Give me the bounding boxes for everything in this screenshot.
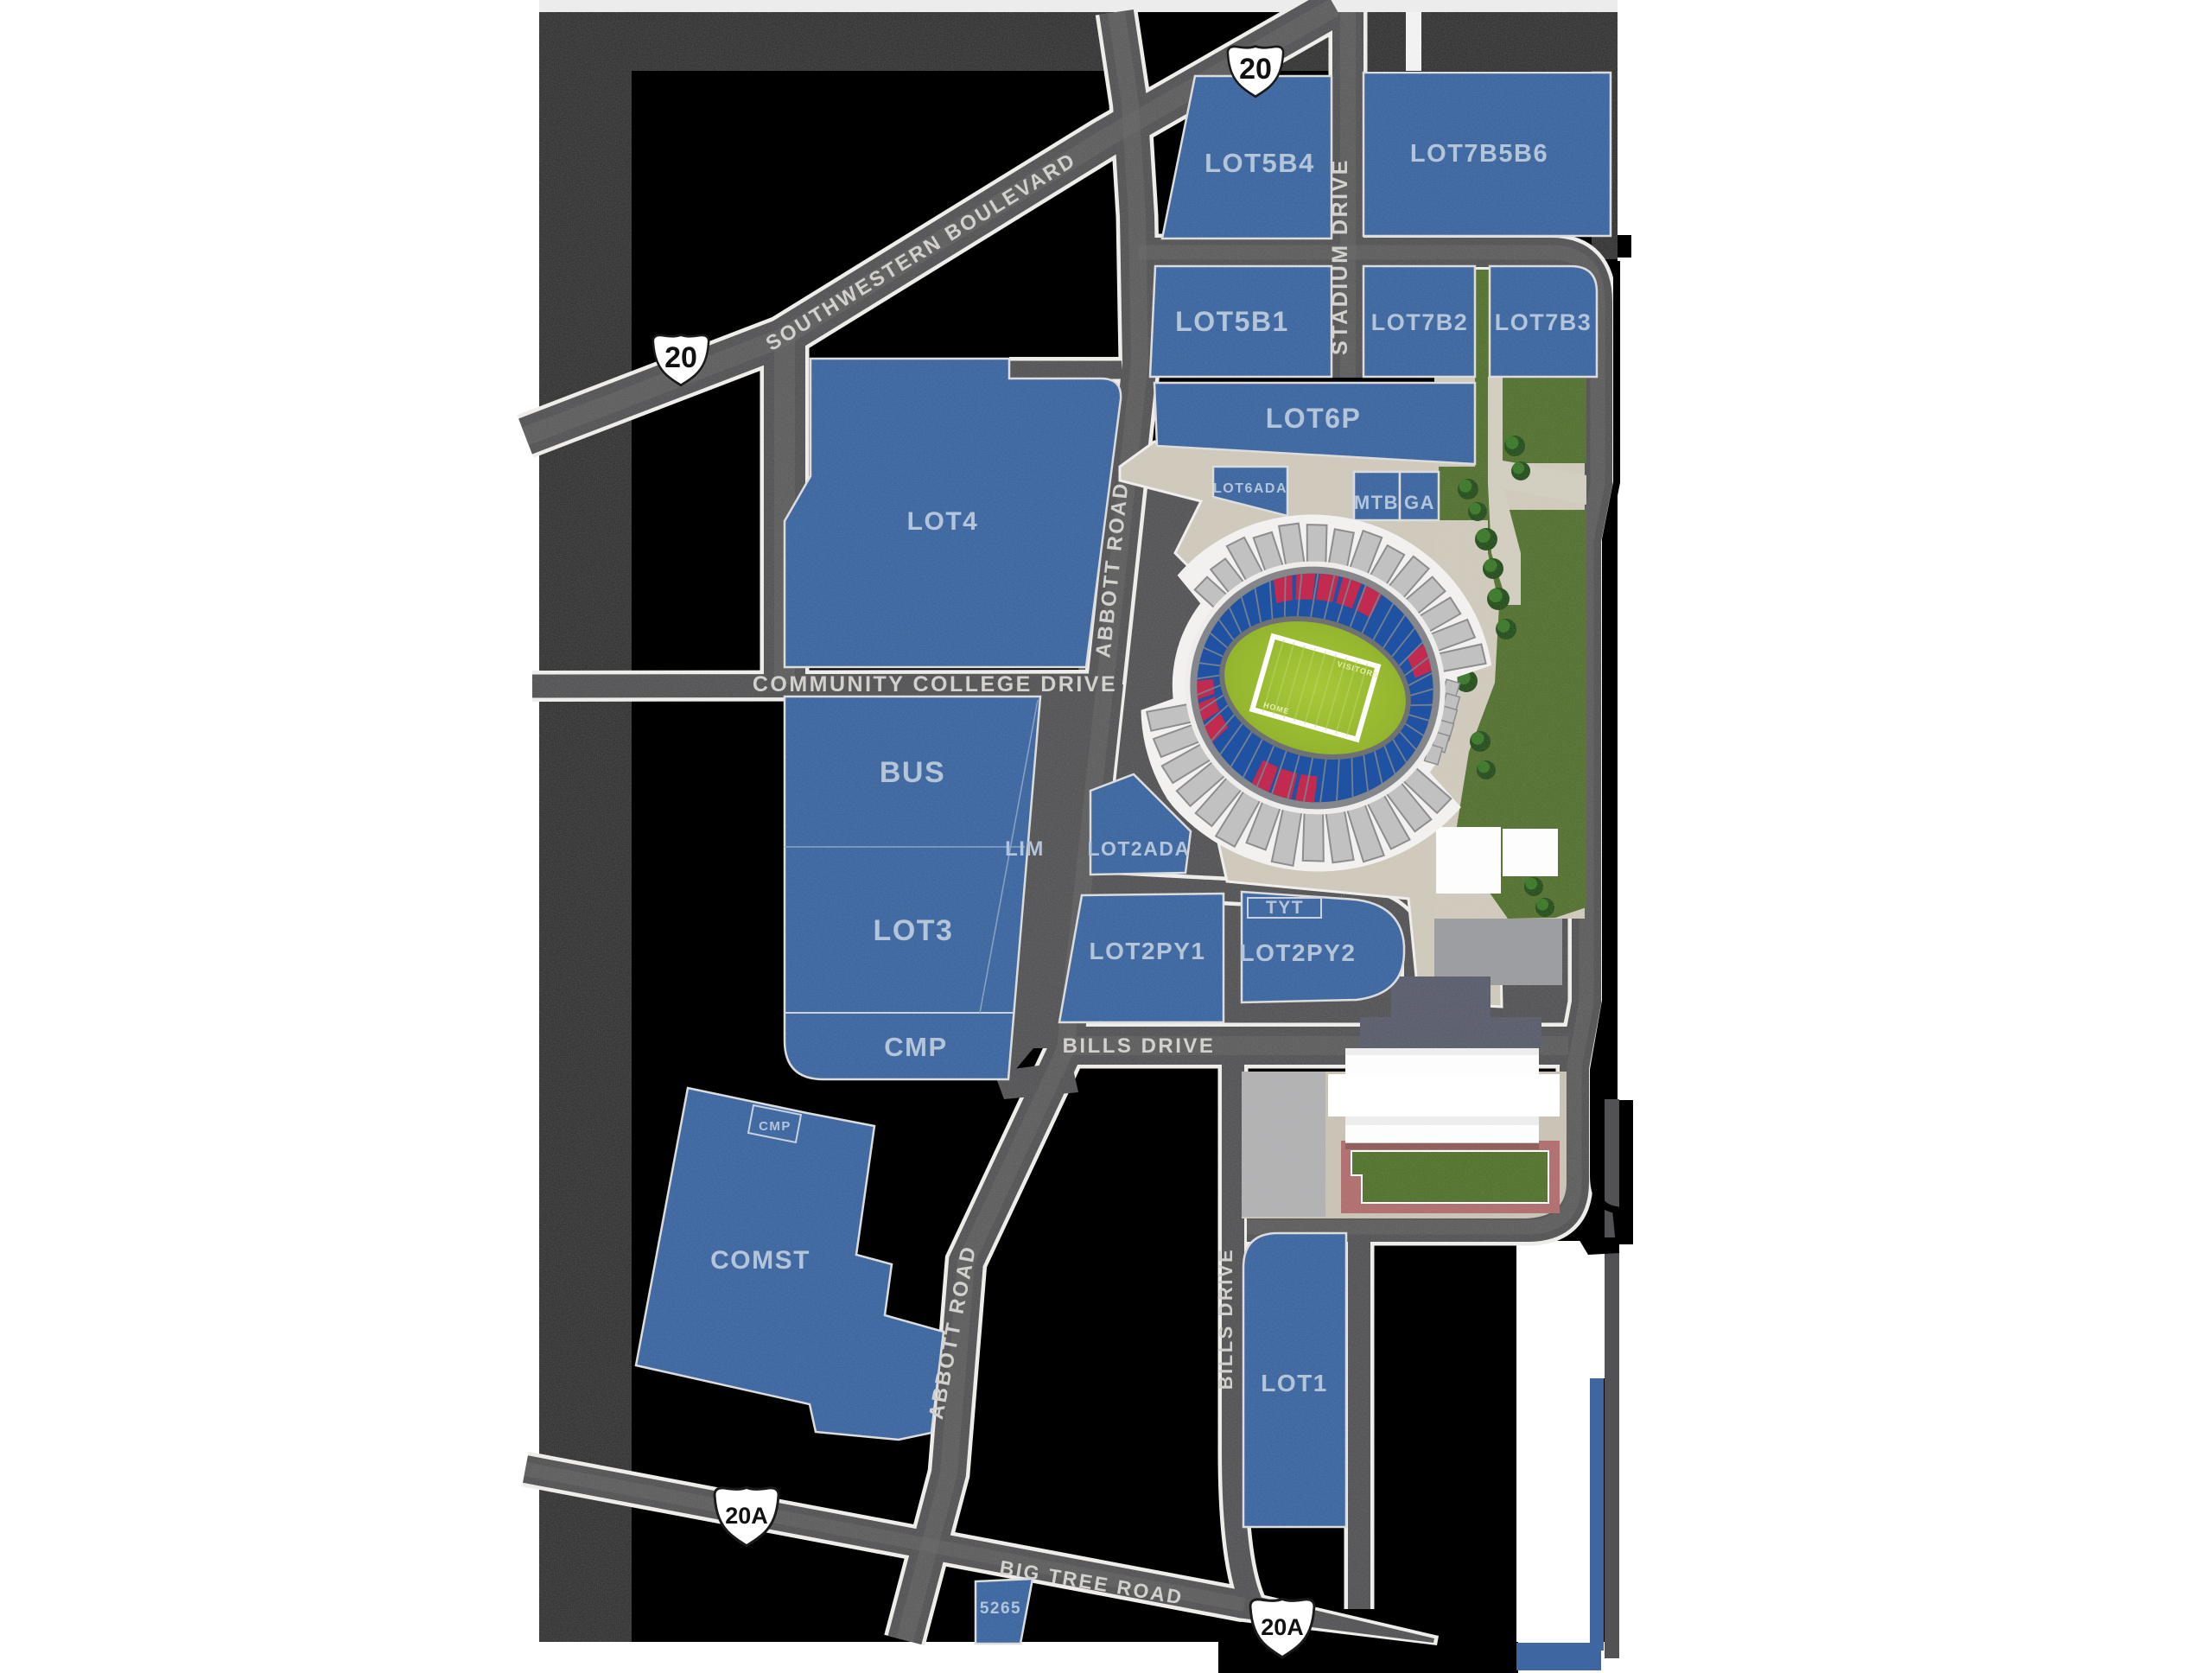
svg-text:COMMUNITY COLLEGE DRIVE: COMMUNITY COLLEGE DRIVE [753, 672, 1117, 697]
svg-text:BILLS DRIVE: BILLS DRIVE [1215, 1248, 1236, 1390]
svg-text:20A: 20A [725, 1503, 768, 1529]
svg-text:LOT2PY1: LOT2PY1 [1090, 938, 1206, 964]
svg-text:BUS: BUS [880, 756, 945, 789]
svg-text:CMP: CMP [884, 1032, 947, 1062]
svg-text:LIM: LIM [1005, 837, 1045, 861]
svg-text:LOT2PY2: LOT2PY2 [1240, 939, 1357, 966]
svg-text:LOT5B1: LOT5B1 [1175, 306, 1289, 337]
svg-text:COMST: COMST [710, 1246, 810, 1275]
svg-text:MTB: MTB [1354, 492, 1399, 513]
svg-text:LOT2ADA: LOT2ADA [1087, 837, 1190, 860]
svg-text:LOT7B3: LOT7B3 [1495, 309, 1592, 335]
svg-text:LOT5B4: LOT5B4 [1205, 148, 1315, 178]
svg-text:LOT7B5B6: LOT7B5B6 [1410, 140, 1548, 168]
svg-text:LOT7B2: LOT7B2 [1371, 309, 1469, 335]
svg-text:BILLS DRIVE: BILLS DRIVE [1063, 1034, 1216, 1058]
svg-text:LOT3: LOT3 [874, 914, 954, 947]
svg-text:LOT1: LOT1 [1261, 1370, 1328, 1396]
svg-text:CMP: CMP [759, 1119, 791, 1134]
svg-text:LOT4: LOT4 [907, 507, 979, 536]
svg-text:20: 20 [664, 341, 697, 374]
svg-text:20A: 20A [1261, 1614, 1304, 1640]
svg-text:STADIUM DRIVE: STADIUM DRIVE [1328, 158, 1352, 355]
svg-text:5265: 5265 [980, 1600, 1021, 1618]
svg-text:LOT6ADA: LOT6ADA [1213, 481, 1287, 496]
svg-text:GA: GA [1404, 492, 1435, 513]
svg-text:TYT: TYT [1266, 898, 1304, 918]
svg-text:LOT6P: LOT6P [1266, 403, 1362, 434]
svg-text:20: 20 [1239, 53, 1272, 86]
